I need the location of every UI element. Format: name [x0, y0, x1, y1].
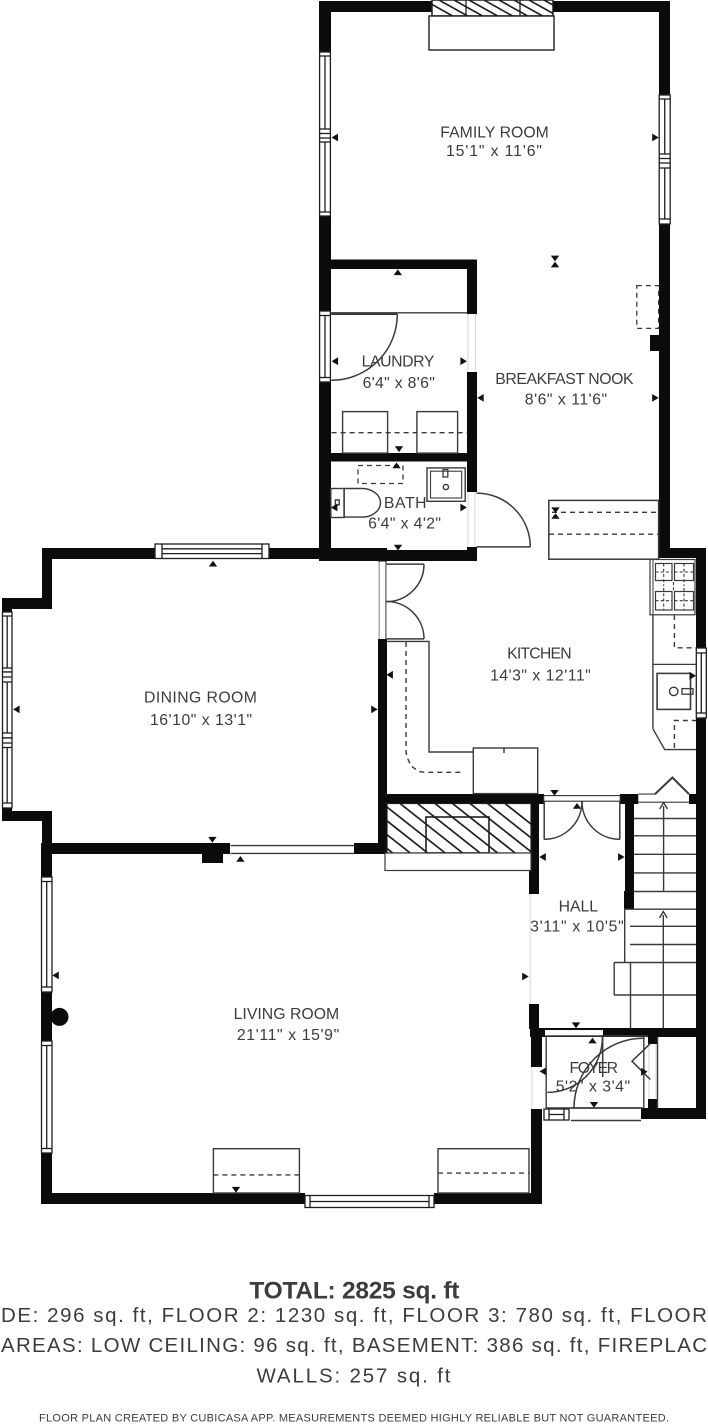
svg-text:15'1" x 11'6": 15'1" x 11'6": [446, 143, 542, 160]
svg-text:LAUNDRY: LAUNDRY: [362, 354, 435, 371]
svg-text:HALL: HALL: [559, 899, 599, 916]
svg-text:21'11" x 15'9": 21'11" x 15'9": [237, 1027, 339, 1044]
svg-text:6'4" x 4'2": 6'4" x 4'2": [368, 515, 441, 532]
svg-text:AREAS: LOW CEILING: 96 sq. ft,: AREAS: LOW CEILING: 96 sq. ft, BASEMENT:…: [1, 1334, 707, 1357]
svg-text:FLOOR PLAN CREATED BY CUBICASA: FLOOR PLAN CREATED BY CUBICASA APP. MEAS…: [39, 1412, 669, 1424]
svg-text:14'3" x 12'11": 14'3" x 12'11": [490, 668, 591, 685]
svg-text:8'6" x 11'6": 8'6" x 11'6": [525, 391, 607, 408]
svg-text:TOTAL: 2825 sq. ft: TOTAL: 2825 sq. ft: [249, 1278, 459, 1305]
svg-text:3'11" x 10'5": 3'11" x 10'5": [530, 919, 624, 936]
svg-text:KITCHEN: KITCHEN: [507, 646, 572, 663]
svg-text:16'10" x 13'1": 16'10" x 13'1": [150, 712, 252, 729]
svg-text:FAMILY ROOM: FAMILY ROOM: [440, 124, 549, 141]
svg-text:FOYER: FOYER: [570, 1060, 619, 1077]
svg-text:LIVING ROOM: LIVING ROOM: [234, 1006, 340, 1023]
svg-text:WALLS: 257 sq. ft: WALLS: 257 sq. ft: [257, 1365, 451, 1388]
svg-text:5'2" x 3'4": 5'2" x 3'4": [556, 1078, 630, 1095]
svg-text:6'4" x 8'6": 6'4" x 8'6": [363, 375, 435, 392]
svg-text:BATH: BATH: [384, 495, 427, 512]
svg-text:DE: 296 sq. ft, FLOOR 2: 1230: DE: 296 sq. ft, FLOOR 2: 1230 sq. ft, FL…: [1, 1304, 707, 1327]
svg-text:DINING ROOM: DINING ROOM: [144, 690, 257, 707]
svg-text:BREAKFAST NOOK: BREAKFAST NOOK: [495, 371, 634, 388]
